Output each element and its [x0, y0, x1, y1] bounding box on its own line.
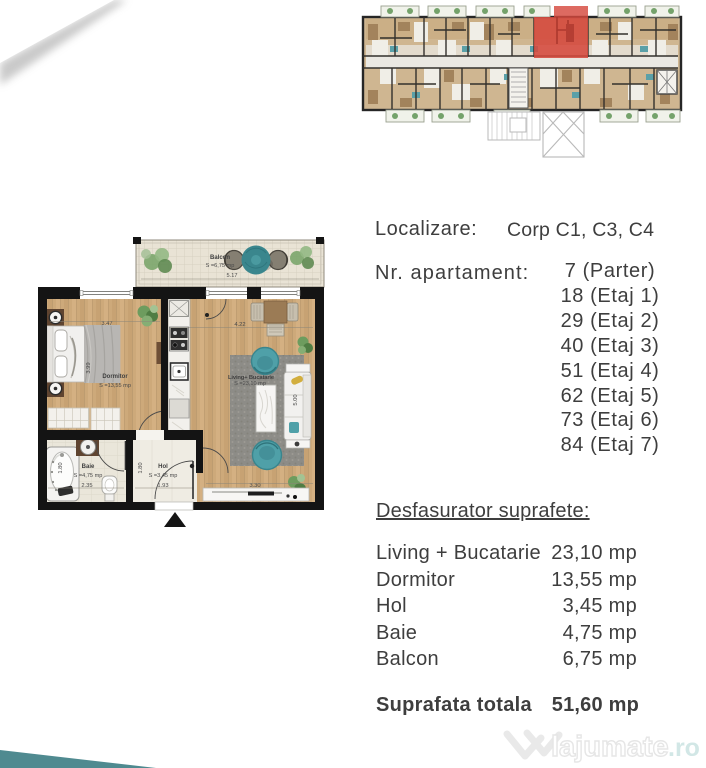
svg-text:S =23,10 mp: S =23,10 mp	[234, 381, 266, 387]
svg-text:4.22: 4.22	[234, 322, 245, 328]
svg-text:3.47: 3.47	[101, 321, 112, 327]
svg-text:lajumate: lajumate	[551, 731, 669, 763]
svg-text:.ro: .ro	[668, 734, 700, 762]
svg-text:5.00: 5.00	[293, 394, 299, 405]
svg-text:Hol: Hol	[158, 464, 168, 470]
svg-text:S =13,55 mp: S =13,55 mp	[99, 383, 131, 389]
svg-text:S =6,75 mp: S =6,75 mp	[206, 263, 235, 269]
svg-text:Balcon: Balcon	[210, 255, 230, 261]
svg-text:1.80: 1.80	[58, 462, 64, 473]
svg-text:Baie: Baie	[82, 464, 95, 470]
svg-text:Dormitor: Dormitor	[102, 374, 128, 380]
svg-text:5.17: 5.17	[227, 273, 238, 279]
svg-text:1.80: 1.80	[138, 462, 144, 473]
svg-text:3.30: 3.30	[249, 483, 260, 489]
svg-text:S =4,75 mp: S =4,75 mp	[74, 473, 103, 479]
svg-text:3.99: 3.99	[86, 362, 92, 373]
